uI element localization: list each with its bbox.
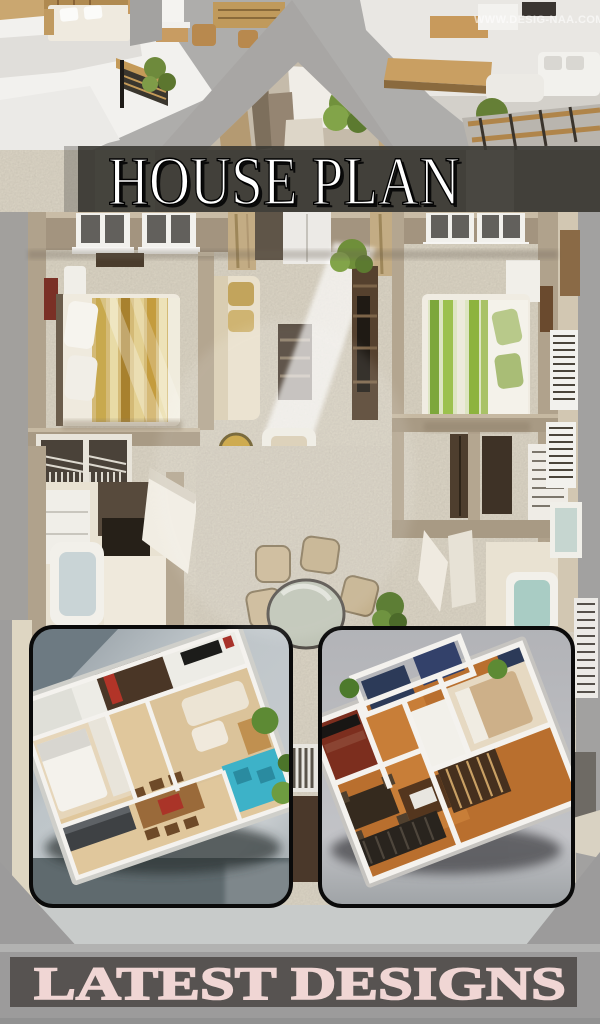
- svg-text:LATEST DESIGNS: LATEST DESIGNS: [34, 958, 566, 1010]
- svg-text:WWW.DESIG-NAA.COM: WWW.DESIG-NAA.COM: [474, 14, 600, 26]
- svg-text:HOUSE PLAN: HOUSE PLAN: [108, 144, 460, 219]
